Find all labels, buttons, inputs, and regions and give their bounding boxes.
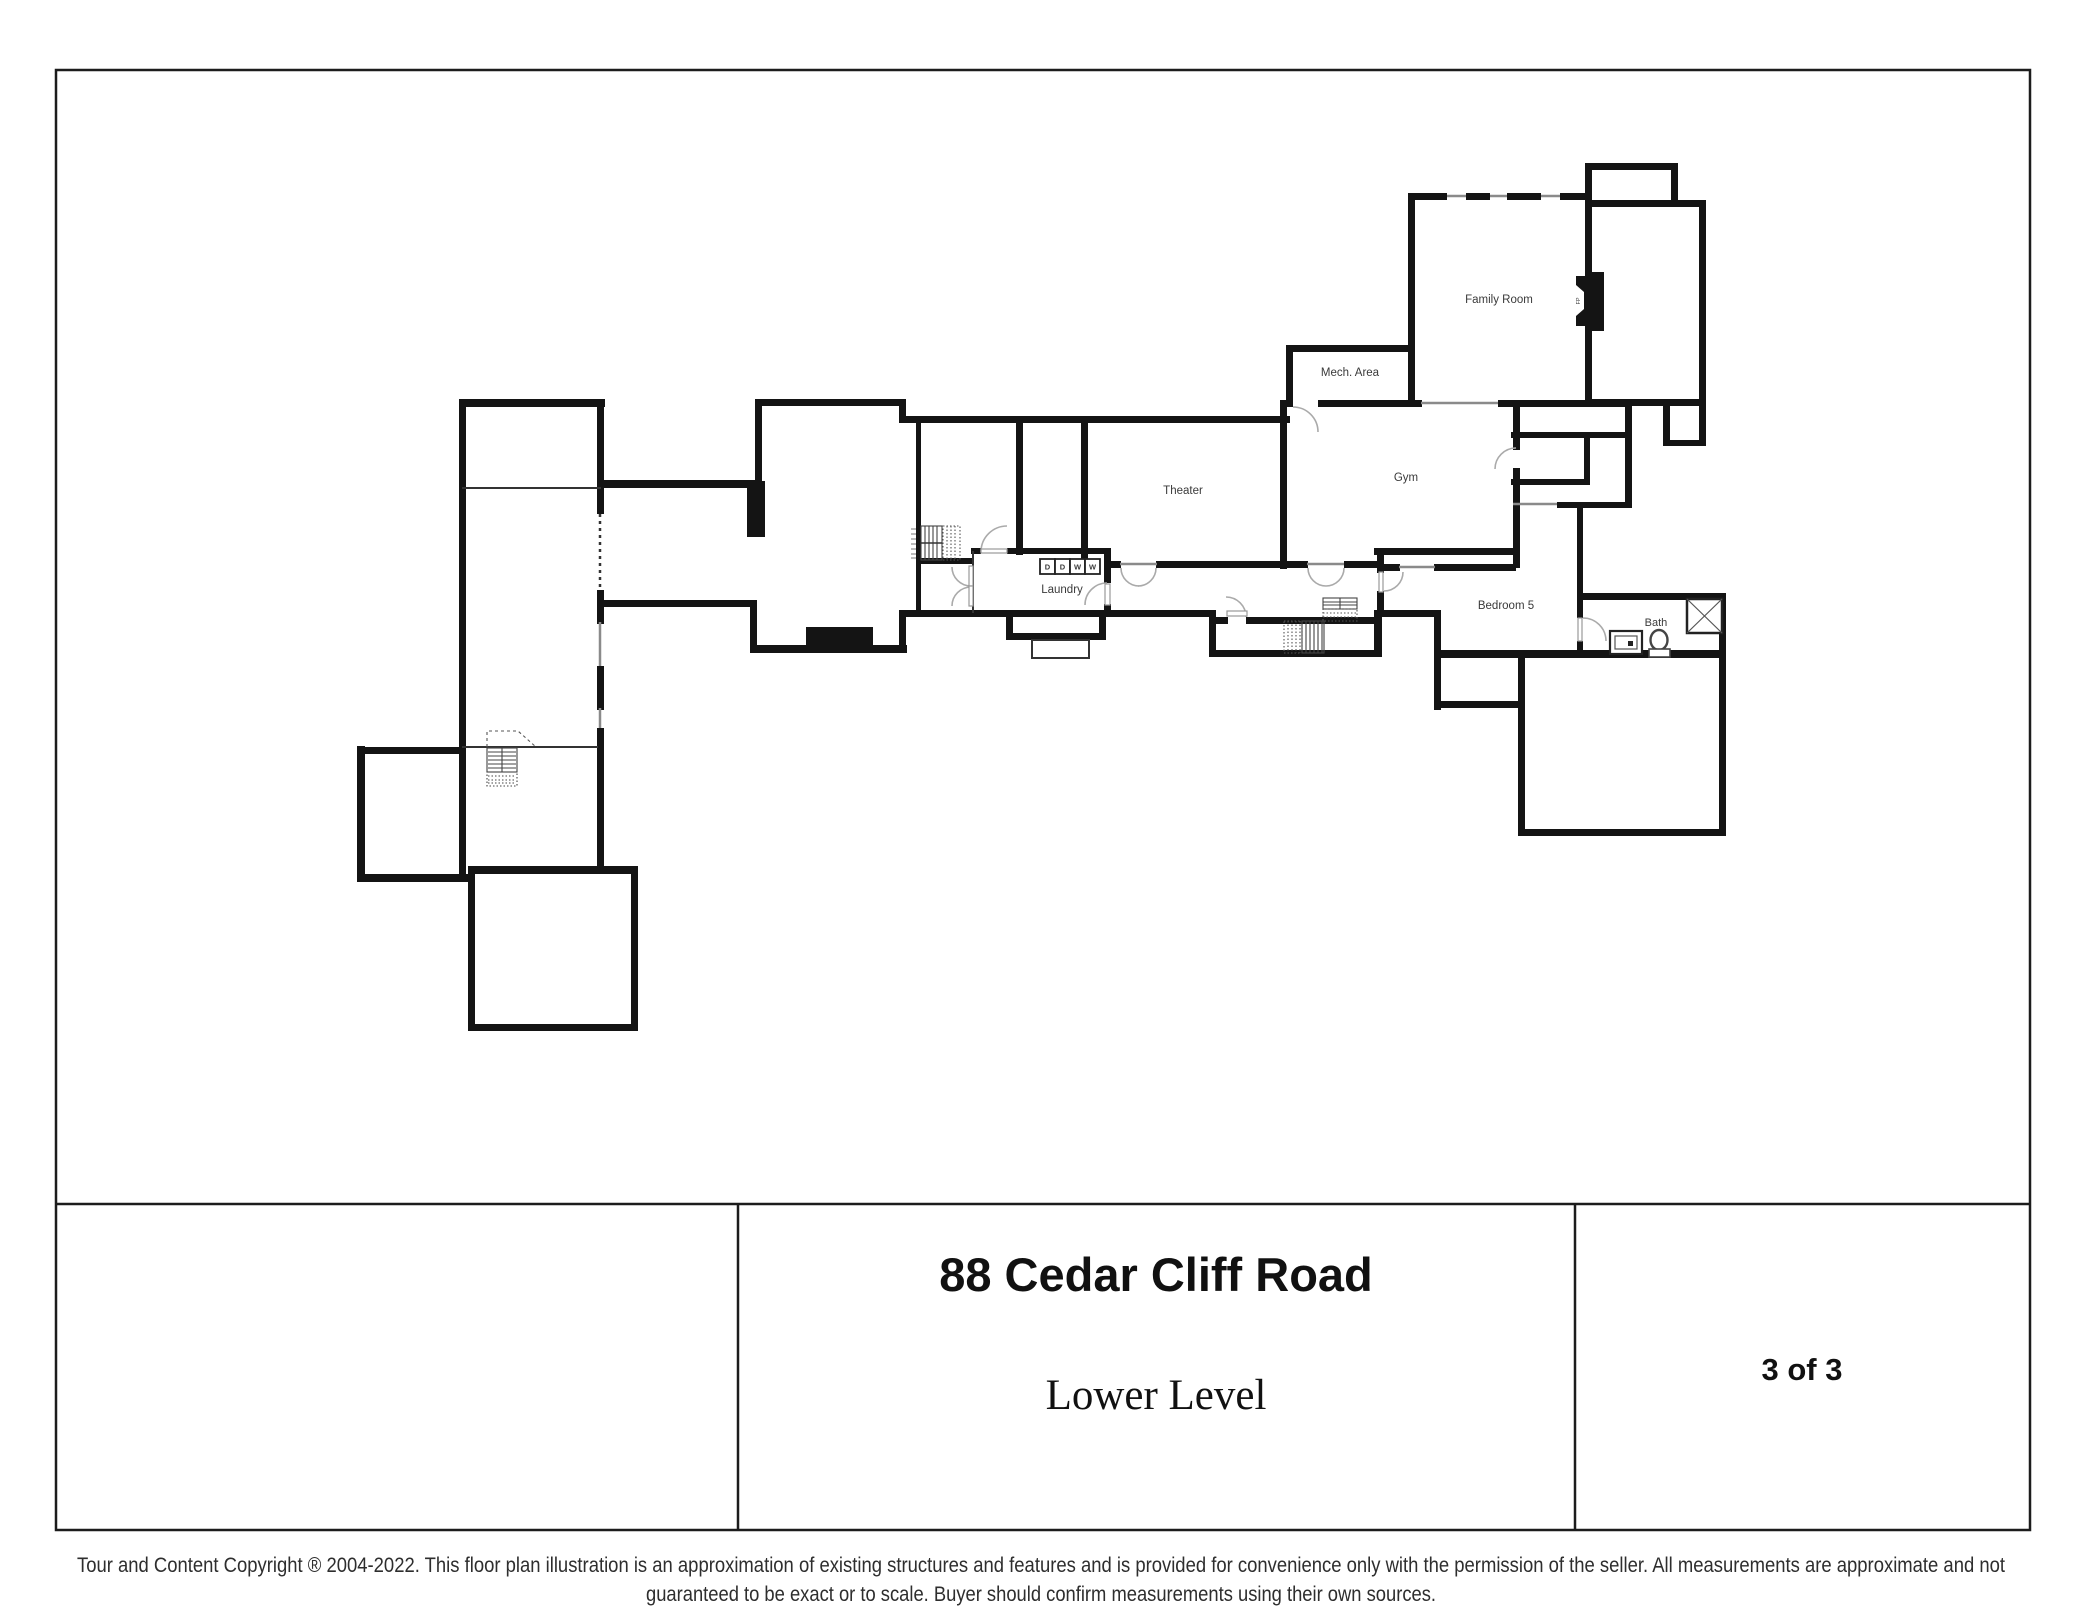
svg-text:Family Room: Family Room	[1465, 294, 1533, 306]
svg-text:W: W	[1089, 563, 1097, 572]
svg-text:guaranteed to be exact or to s: guaranteed to be exact or to scale. Buye…	[646, 1583, 1436, 1606]
svg-text:88 Cedar Cliff Road: 88 Cedar Cliff Road	[939, 1248, 1373, 1301]
svg-text:Lower Level: Lower Level	[1046, 1372, 1267, 1419]
svg-text:Tour and Content Copyright ® 2: Tour and Content Copyright ® 2004-2022. …	[77, 1554, 2005, 1577]
svg-text:Mech. Area: Mech. Area	[1321, 367, 1380, 379]
svg-text:3 of 3: 3 of 3	[1762, 1352, 1843, 1387]
svg-text:Laundry: Laundry	[1041, 584, 1083, 596]
svg-text:Theater: Theater	[1163, 485, 1203, 497]
svg-text:D: D	[1060, 563, 1066, 572]
svg-text:Bath: Bath	[1645, 617, 1668, 629]
svg-text:W: W	[1074, 563, 1082, 572]
svg-text:D: D	[1045, 563, 1051, 572]
svg-text:Bedroom 5: Bedroom 5	[1478, 600, 1534, 612]
svg-text:Gym: Gym	[1394, 472, 1418, 484]
svg-text:FP: FP	[1576, 297, 1582, 304]
